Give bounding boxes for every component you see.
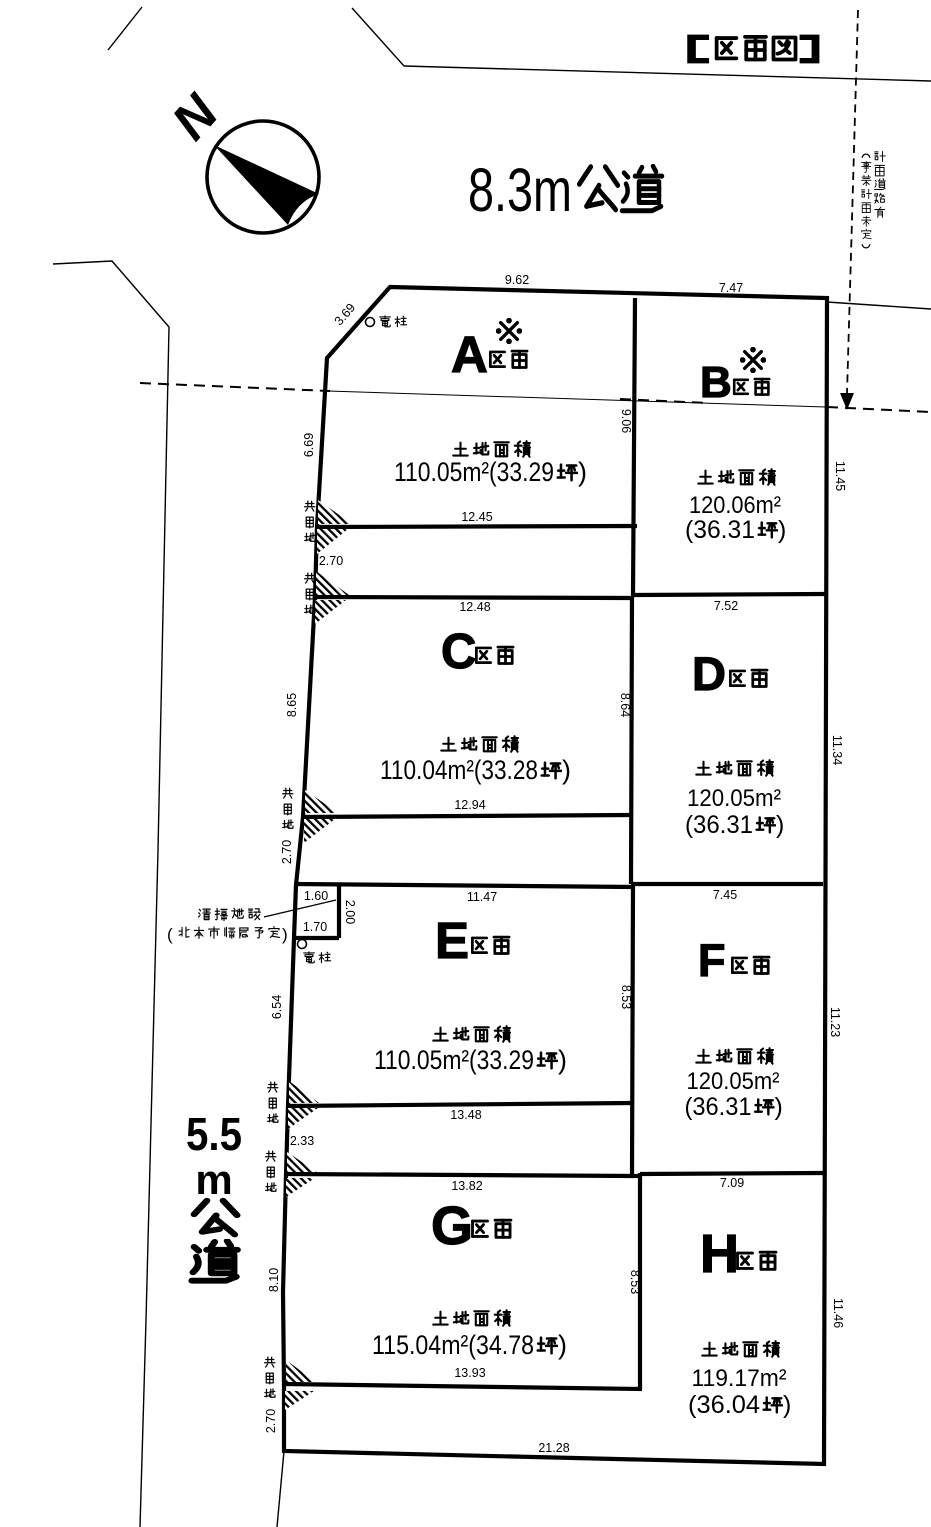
svg-text:7.47: 7.47	[719, 281, 743, 295]
svg-text:8.53: 8.53	[628, 1270, 642, 1294]
svg-text:110.05m²(33.29: 110.05m²(33.29	[394, 457, 554, 487]
svg-text:): )	[558, 1330, 567, 1360]
svg-text:115.04m²(34.78: 115.04m²(34.78	[372, 1330, 534, 1360]
svg-text:(36.31: (36.31	[685, 516, 755, 544]
svg-text:12.48: 12.48	[459, 600, 490, 614]
svg-text:(36.31: (36.31	[685, 1093, 752, 1121]
svg-text:120.05m²: 120.05m²	[687, 1068, 780, 1095]
svg-text:120.06m²: 120.06m²	[689, 492, 781, 519]
svg-text:8.64: 8.64	[618, 693, 632, 717]
svg-text:): )	[282, 925, 288, 944]
svg-text:11.34: 11.34	[830, 735, 844, 765]
svg-text:11.23: 11.23	[828, 1007, 842, 1037]
svg-text:1.70: 1.70	[303, 920, 327, 934]
svg-text:9.06: 9.06	[619, 409, 633, 433]
svg-text:13.93: 13.93	[454, 1366, 485, 1380]
svg-text:5.5: 5.5	[186, 1108, 242, 1160]
svg-text:G: G	[431, 1196, 473, 1256]
svg-text:6.69: 6.69	[302, 433, 316, 457]
svg-text:): )	[778, 516, 786, 544]
svg-text:): )	[775, 1093, 783, 1121]
svg-text:110.05m²(33.29: 110.05m²(33.29	[374, 1045, 534, 1075]
svg-text:12.45: 12.45	[461, 510, 492, 524]
svg-text:): )	[578, 457, 587, 487]
svg-text:7.09: 7.09	[720, 1176, 744, 1190]
svg-text:H: H	[700, 1224, 739, 1284]
svg-text:(: (	[167, 925, 173, 944]
svg-text:6.54: 6.54	[270, 995, 284, 1019]
svg-text:): )	[558, 1045, 567, 1075]
svg-text:2.00: 2.00	[343, 900, 357, 924]
svg-text:11.45: 11.45	[833, 461, 847, 491]
svg-text:(36.04: (36.04	[688, 1391, 760, 1419]
svg-text:E: E	[435, 912, 469, 969]
svg-text:2.70: 2.70	[319, 554, 343, 568]
svg-text:A: A	[451, 326, 488, 383]
svg-text:21.28: 21.28	[538, 1441, 569, 1455]
svg-text:120.05m²: 120.05m²	[687, 785, 781, 812]
svg-text:7.52: 7.52	[714, 599, 738, 613]
svg-text:): )	[783, 1391, 791, 1419]
svg-text:12.94: 12.94	[454, 798, 485, 812]
svg-text:2.70: 2.70	[264, 1409, 278, 1433]
svg-text:C: C	[441, 625, 476, 679]
svg-text:7.45: 7.45	[713, 888, 737, 902]
svg-text:11.46: 11.46	[831, 1298, 845, 1328]
svg-text:D: D	[692, 647, 726, 700]
svg-text:11.47: 11.47	[467, 890, 497, 904]
svg-text:13.48: 13.48	[450, 1108, 481, 1122]
svg-text:F: F	[698, 935, 726, 986]
svg-text:13.82: 13.82	[451, 1179, 482, 1193]
svg-text:119.17m²: 119.17m²	[692, 1365, 787, 1392]
svg-text:8.53: 8.53	[619, 985, 633, 1009]
svg-text:): )	[562, 755, 571, 785]
svg-text:8.10: 8.10	[267, 1268, 281, 1292]
svg-text:m: m	[195, 1156, 232, 1203]
svg-text:(36.31: (36.31	[685, 811, 753, 839]
svg-text:9.62: 9.62	[505, 273, 529, 287]
svg-text:): )	[776, 811, 784, 839]
svg-text:2.33: 2.33	[290, 1134, 314, 1148]
svg-text:8.65: 8.65	[285, 693, 299, 717]
svg-text:8.3m: 8.3m	[468, 156, 572, 224]
svg-text:2.70: 2.70	[280, 840, 294, 864]
svg-text:1.60: 1.60	[304, 889, 328, 903]
svg-text:3.69: 3.69	[332, 301, 359, 329]
svg-text:110.04m²(33.28: 110.04m²(33.28	[380, 755, 538, 785]
svg-text:B: B	[700, 358, 732, 407]
